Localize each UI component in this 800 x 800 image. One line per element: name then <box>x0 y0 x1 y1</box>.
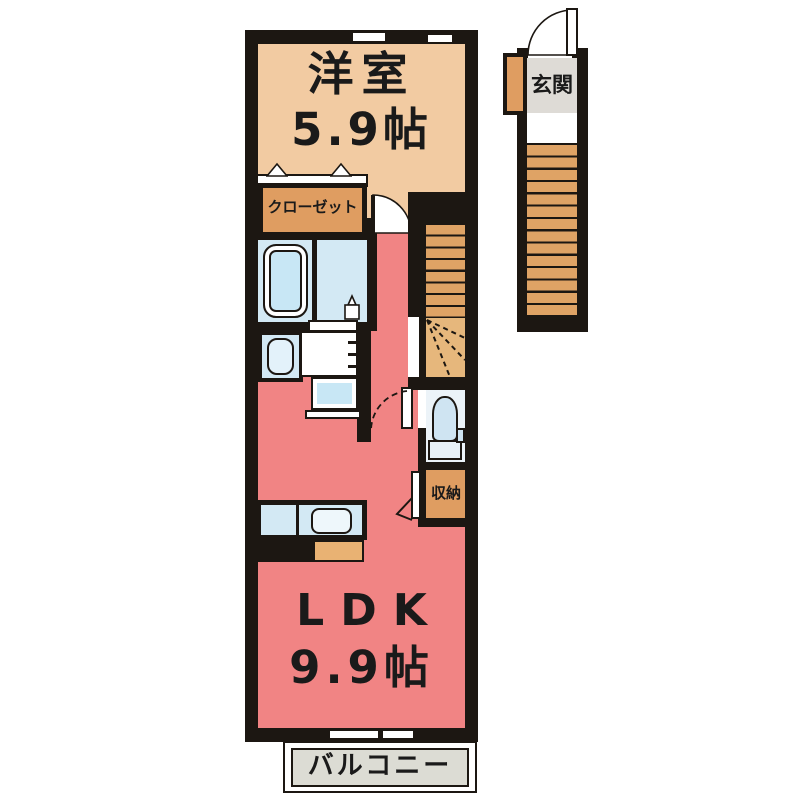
storage-label: 収納 <box>420 486 472 502</box>
room-name: 収納 <box>431 484 461 502</box>
toilet-bowl <box>432 396 458 442</box>
washroom-faucet-icon <box>340 294 364 322</box>
room-name: クローゼット <box>267 198 357 216</box>
room-area: 9.9帖 <box>289 641 434 694</box>
vanity-handle <box>348 341 356 344</box>
western-room-label: 洋室 <box>258 50 465 98</box>
washing-machine-base <box>305 410 361 419</box>
floor-plan: 洋室 5.9帖 クローゼット <box>0 0 800 800</box>
western-room-area: 5.9帖 <box>258 106 465 153</box>
room-name: 洋室 <box>308 47 416 101</box>
winder-steps <box>426 318 465 377</box>
door-arc-western-room <box>370 193 412 235</box>
room-name: 玄関 <box>531 73 573 97</box>
room-area: 5.9帖 <box>291 103 432 156</box>
door-arc-storage <box>395 497 415 522</box>
bifold-door-icon <box>330 162 352 177</box>
balcony-label: バルコニー <box>291 753 469 780</box>
room-name: バルコニー <box>308 751 452 781</box>
washbasin-bowl <box>267 338 294 375</box>
entrance-label: 玄関 <box>525 74 579 96</box>
winder-lines <box>426 318 465 377</box>
kitchen-lower-cabinet <box>252 538 313 562</box>
door-arc-toilet <box>367 387 413 433</box>
room-name: LDK <box>296 585 443 636</box>
vanity-handle <box>348 353 356 356</box>
bathtub <box>263 244 308 318</box>
entrance-door-panel <box>566 8 578 56</box>
bifold-door-icon <box>266 162 288 177</box>
ldk-label: LDK <box>258 588 465 634</box>
kitchen-appliance-space <box>313 540 364 562</box>
interior-stairs <box>426 225 465 318</box>
entrance-stairs <box>527 143 577 315</box>
window-slit <box>353 33 385 41</box>
toilet-doorway <box>418 390 426 428</box>
kitchen-counter-left <box>261 505 296 535</box>
ldk-area: 9.9帖 <box>258 644 465 691</box>
window-slit <box>428 35 452 42</box>
washing-machine-pan <box>311 377 358 410</box>
meter-box <box>507 57 523 111</box>
kitchen-sink <box>311 508 352 534</box>
window-slit <box>383 731 413 738</box>
window-slit <box>330 731 378 738</box>
stair-opening <box>408 317 419 377</box>
vanity-handle <box>348 365 356 368</box>
entrance-landing <box>527 113 577 143</box>
closet-label: クローゼット <box>263 200 362 216</box>
toilet-tank <box>428 440 462 460</box>
